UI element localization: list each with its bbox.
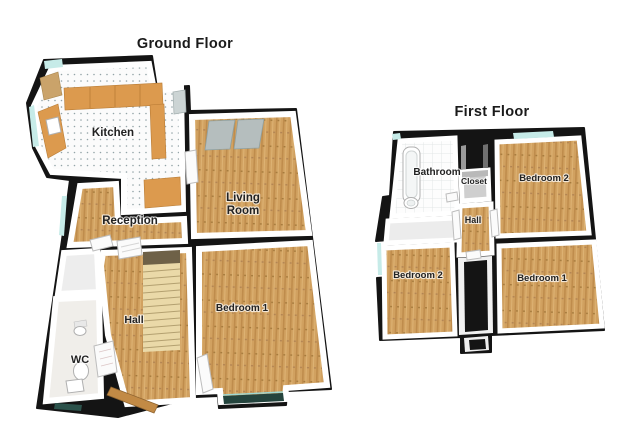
hall-door-bottom — [466, 250, 481, 260]
kitchen-counter-lower — [144, 177, 181, 208]
stairwell-wall-right — [483, 144, 488, 168]
kitchen-sink — [46, 117, 61, 135]
stairwell-wall-left — [461, 145, 466, 170]
label-living-line1: Living — [226, 192, 260, 204]
room-bedroom1-first — [499, 242, 602, 331]
wc-sink — [74, 327, 86, 336]
bedroom2-left-window — [377, 243, 382, 275]
label-bedroom1-first: Bedroom 1 — [517, 273, 567, 284]
label-closet: Closet — [461, 176, 487, 186]
label-hall-ground: Hall — [124, 314, 143, 326]
bathroom-toilet-seat — [407, 200, 415, 206]
bathroom-door — [446, 192, 458, 202]
label-bedroom2-left: Bedroom 2 — [393, 270, 443, 281]
label-reception: Reception — [102, 215, 158, 227]
room-bedroom2-top — [497, 138, 589, 236]
label-bathroom: Bathroom — [413, 167, 460, 178]
first-floor-title: First Floor — [455, 104, 530, 120]
first-floor-plan: First Floor Bathroom — [376, 104, 604, 353]
ground-floor-plan: Ground Floor — [27, 36, 331, 417]
label-bedroom1-ground: Bedroom 1 — [216, 303, 269, 314]
wc-door — [94, 341, 117, 377]
kitchen-counter-right — [150, 104, 166, 159]
kitchen-back-door — [173, 90, 186, 114]
floorplan-image: Ground Floor — [0, 0, 640, 427]
label-wc: WC — [71, 354, 89, 366]
stair-corridor-void — [464, 260, 488, 332]
label-living-line2: Room — [227, 205, 260, 217]
stair-entry-void — [469, 339, 486, 350]
room-hall-first — [459, 204, 492, 255]
label-kitchen: Kitchen — [92, 127, 134, 139]
room-bedroom2-left — [384, 245, 455, 337]
living-panel-left — [205, 120, 235, 150]
label-bedroom2-top: Bedroom 2 — [519, 173, 569, 184]
floorplan-page: Ground Floor — [0, 0, 640, 427]
room-store — [58, 251, 99, 294]
kitchen-counter-top — [64, 83, 163, 110]
hall-door-right — [490, 209, 499, 237]
wc-toilet-tank — [66, 379, 84, 393]
living-panel-right — [234, 119, 264, 149]
hall-door-left — [452, 210, 461, 240]
living-door — [185, 150, 198, 184]
room-bedroom1-ground — [199, 243, 327, 402]
bathroom-corner-window — [392, 133, 401, 140]
room-landing — [386, 218, 456, 243]
ground-floor-title: Ground Floor — [137, 36, 233, 52]
label-hall-first: Hall — [465, 215, 482, 225]
